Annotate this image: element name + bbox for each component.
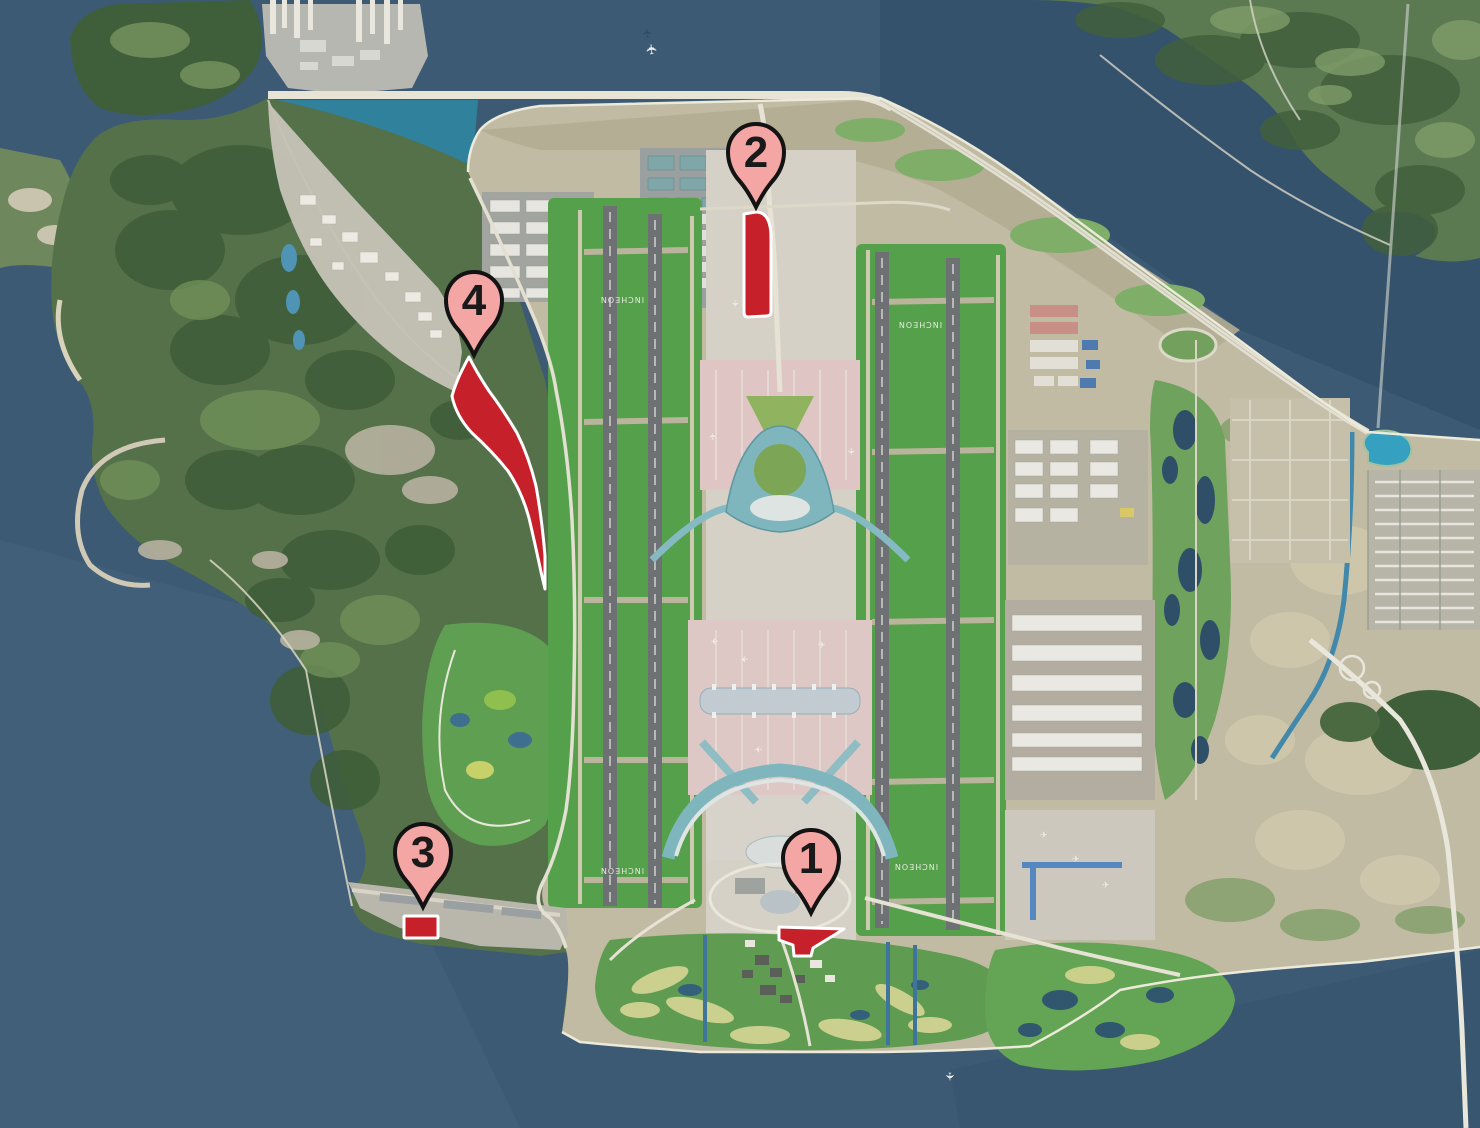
transport-center bbox=[760, 890, 800, 914]
concourse bbox=[700, 684, 860, 718]
logistics-park bbox=[1008, 430, 1148, 565]
pin-number-label: 2 bbox=[744, 128, 768, 177]
parking-lot bbox=[735, 878, 765, 894]
runway-label-sw: INCHEON bbox=[600, 866, 644, 875]
highlight-area-3[interactable] bbox=[404, 916, 438, 938]
island-park bbox=[422, 623, 567, 846]
island-meadow bbox=[110, 22, 190, 58]
t2-green-roof bbox=[754, 444, 806, 496]
park-meadow bbox=[484, 690, 516, 710]
harbor-port bbox=[262, 0, 428, 94]
kidney-pond bbox=[1364, 431, 1412, 466]
satellite-map: ✈ ✈ ✈ ✈ ✈ ✈ ✈ ✈ ✈ ✈ ✈ ✈ ✈ INCHEON INCHEO… bbox=[0, 0, 1480, 1128]
pin-number-label: 3 bbox=[411, 828, 435, 877]
svg-text:✈: ✈ bbox=[754, 743, 762, 753]
t2-forecourt bbox=[750, 495, 810, 521]
runway-label-se: INCHEON bbox=[894, 862, 938, 871]
islet-beach bbox=[8, 188, 52, 212]
airplane-shadow-icon: ✈ bbox=[640, 27, 655, 38]
svg-text:✈: ✈ bbox=[709, 432, 719, 440]
svg-text:✈: ✈ bbox=[818, 641, 826, 651]
east-residential-grid bbox=[1368, 470, 1480, 630]
svg-text:✈: ✈ bbox=[740, 653, 748, 663]
svg-text:✈: ✈ bbox=[845, 448, 855, 456]
east-forest bbox=[1320, 702, 1380, 742]
svg-text:✈: ✈ bbox=[729, 300, 739, 308]
southeast-apron bbox=[1005, 810, 1155, 940]
park-pond bbox=[508, 732, 532, 748]
svg-text:✈: ✈ bbox=[1040, 831, 1048, 841]
circular-feature bbox=[1160, 329, 1216, 361]
airplane-icon: ✈ bbox=[943, 1072, 956, 1081]
svg-text:✈: ✈ bbox=[1102, 881, 1110, 891]
maintenance-hangars bbox=[1005, 600, 1155, 800]
map-canvas: ✈ ✈ ✈ ✈ ✈ ✈ ✈ ✈ ✈ ✈ ✈ ✈ ✈ INCHEON INCHEO… bbox=[0, 0, 1480, 1128]
runway-label-ne: INCHEON bbox=[898, 320, 942, 329]
park-pond bbox=[450, 713, 470, 727]
airplane-icon: ✈ bbox=[644, 43, 661, 56]
highlight-area-2[interactable] bbox=[744, 212, 771, 317]
blue-taxiway-mark bbox=[1030, 862, 1036, 920]
park-green bbox=[422, 623, 567, 846]
park-meadow bbox=[466, 761, 494, 779]
svg-text:✈: ✈ bbox=[1072, 855, 1080, 865]
pin-number-label: 1 bbox=[799, 834, 823, 883]
grid-roads bbox=[1232, 400, 1348, 560]
island-meadow bbox=[180, 61, 240, 89]
svg-text:✈: ✈ bbox=[710, 635, 718, 645]
runway-label-nw: INCHEON bbox=[600, 295, 644, 304]
pin-number-label: 4 bbox=[462, 276, 487, 325]
